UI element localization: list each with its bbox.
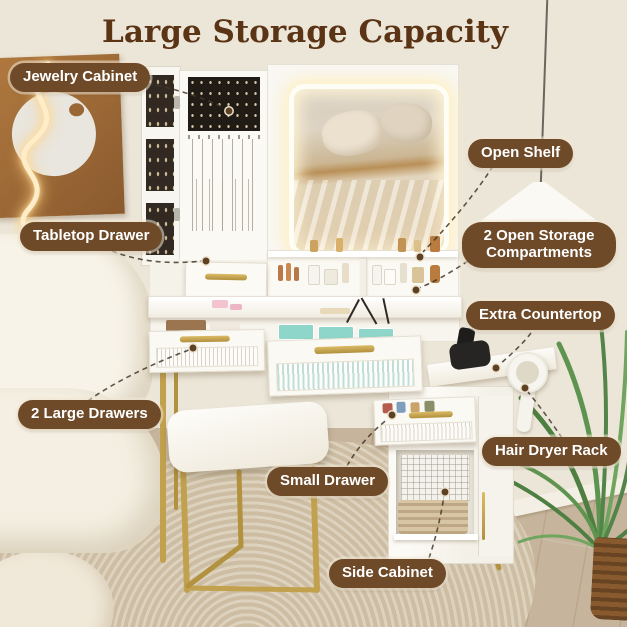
callout-open-storage-compartments: 2 Open Storage Compartments xyxy=(462,222,616,268)
callout-open-shelf: Open Shelf xyxy=(468,139,573,168)
hanging-necklaces xyxy=(196,179,252,231)
pink-cosmetic xyxy=(230,304,242,310)
cosmetic-item xyxy=(400,263,407,283)
drawer-mesh-front xyxy=(380,421,473,442)
reflected-pillow xyxy=(319,106,388,160)
drawer-handle xyxy=(205,274,247,281)
callout-side-cabinet: Side Cabinet xyxy=(329,559,446,588)
perfume-bottle xyxy=(414,240,421,252)
drawer-contents xyxy=(410,402,419,412)
drawer-handle xyxy=(180,336,230,343)
perfume-bottle xyxy=(430,236,440,252)
drawer-handle xyxy=(314,345,374,354)
wire-basket xyxy=(400,454,470,502)
shelf-board xyxy=(394,534,478,540)
door-hinge xyxy=(174,96,180,109)
desktop-surface xyxy=(148,296,462,318)
side-cabinet-door xyxy=(478,396,512,556)
cosmetic-item xyxy=(286,263,291,281)
callout-extra-countertop: Extra Countertop xyxy=(466,301,615,330)
small-drawer xyxy=(373,396,474,443)
reflected-pillow xyxy=(378,100,434,145)
large-drawer-right xyxy=(267,335,423,396)
callout-jewelry-cabinet: Jewelry Cabinet xyxy=(10,63,150,92)
large-drawer-left xyxy=(149,329,266,373)
callout-hair-dryer-rack: Hair Dryer Rack xyxy=(482,437,621,466)
callout-tabletop-drawer: Tabletop Drawer xyxy=(20,222,162,251)
earring-panel xyxy=(188,77,260,131)
led-mirror xyxy=(289,84,449,256)
product-infographic: Jewelry Cabinet Open Shelf Tabletop Draw… xyxy=(0,0,627,627)
cosmetic-item xyxy=(372,265,382,285)
page-title: Large Storage Capacity xyxy=(0,14,610,50)
callout-large-drawers: 2 Large Drawers xyxy=(18,400,161,429)
drawer-handle xyxy=(409,411,453,419)
door-handle xyxy=(482,492,485,540)
small-drawer-box xyxy=(373,396,477,446)
shelf-lip xyxy=(268,251,458,257)
jewelry-cabinet-interior xyxy=(179,70,269,268)
white-hair-dryer-face xyxy=(516,361,539,384)
perfume-bottle xyxy=(398,238,406,252)
cosmetic-item xyxy=(308,265,320,285)
door-jewelry-panel xyxy=(146,75,174,127)
stool-cushion xyxy=(166,400,330,473)
cosmetic-item xyxy=(278,265,283,281)
door-hinge xyxy=(174,208,180,221)
perfume-bottle xyxy=(310,240,318,252)
compartment-divider xyxy=(360,259,366,301)
drawer-mesh-front xyxy=(276,359,415,392)
callout-small-drawer: Small Drawer xyxy=(267,467,388,496)
door-jewelry-panel xyxy=(146,139,174,191)
gold-tray xyxy=(320,308,350,314)
cosmetic-item xyxy=(342,263,349,283)
cosmetic-item xyxy=(412,267,424,283)
perfume-bottle xyxy=(430,265,440,283)
cosmetic-item xyxy=(384,269,396,285)
cosmetic-item xyxy=(324,269,338,285)
drawer-contents xyxy=(424,401,434,412)
drawer-contents xyxy=(396,402,405,413)
drawer-mesh-front xyxy=(156,346,258,368)
tabletop-drawer xyxy=(185,261,268,300)
pink-cosmetic xyxy=(212,300,228,308)
woven-basket xyxy=(398,500,468,534)
mint-storage-box xyxy=(278,324,314,340)
drawer-contents xyxy=(382,403,392,413)
perfume-bottle xyxy=(336,238,343,252)
cosmetic-item xyxy=(294,267,299,281)
